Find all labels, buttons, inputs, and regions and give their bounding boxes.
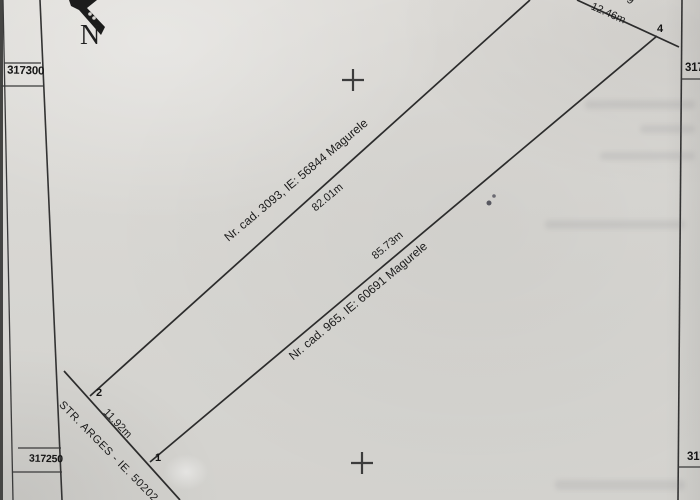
north-label: N bbox=[80, 20, 100, 52]
grid-cross-top bbox=[342, 69, 364, 91]
cadastral-plan-photo: N 317300 317250 317 317 Nr. cad. 3093, I… bbox=[0, 0, 700, 500]
grid-label-left-bottom: 317250 bbox=[29, 454, 63, 465]
corner-point-4: 4 bbox=[657, 24, 663, 35]
bleed-through-smudge bbox=[585, 100, 695, 109]
bleed-through-smudge bbox=[640, 125, 695, 133]
grid-cross-bottom bbox=[351, 452, 373, 474]
frame-right-line bbox=[678, 0, 682, 500]
plan-linework bbox=[0, 0, 700, 500]
grid-label-right-bottom: 317 bbox=[687, 452, 700, 464]
grid-label-left-top: 317300 bbox=[7, 66, 44, 78]
corner-point-1: 1 bbox=[155, 453, 161, 464]
bleed-through-smudge bbox=[600, 152, 695, 160]
corner-point-2: 2 bbox=[96, 388, 102, 399]
photo-left-edge bbox=[0, 0, 3, 500]
ink-blot bbox=[492, 194, 496, 198]
ink-blot bbox=[487, 201, 492, 206]
lower-boundary-line bbox=[150, 36, 657, 462]
bleed-through-smudge bbox=[545, 220, 685, 229]
grid-label-right-top: 317 bbox=[685, 63, 700, 75]
bleed-through-smudge bbox=[555, 480, 685, 490]
